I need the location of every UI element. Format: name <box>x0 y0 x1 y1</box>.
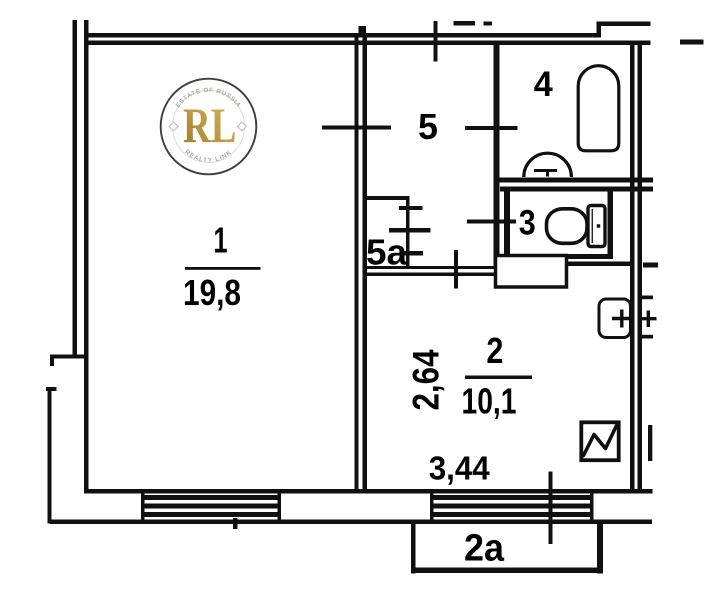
svg-text:2,64: 2,64 <box>406 349 447 410</box>
svg-text:4: 4 <box>534 65 554 104</box>
svg-text:2a: 2a <box>464 528 505 570</box>
svg-text:5a: 5a <box>366 232 408 273</box>
svg-text:19,8: 19,8 <box>183 272 241 313</box>
svg-text:1: 1 <box>214 220 228 261</box>
svg-text:10,1: 10,1 <box>462 381 517 422</box>
svg-text:3,44: 3,44 <box>429 450 491 487</box>
svg-text:5: 5 <box>418 106 438 147</box>
svg-text:RL: RL <box>183 97 237 153</box>
svg-text:2: 2 <box>486 330 503 371</box>
svg-text:3: 3 <box>519 204 536 243</box>
